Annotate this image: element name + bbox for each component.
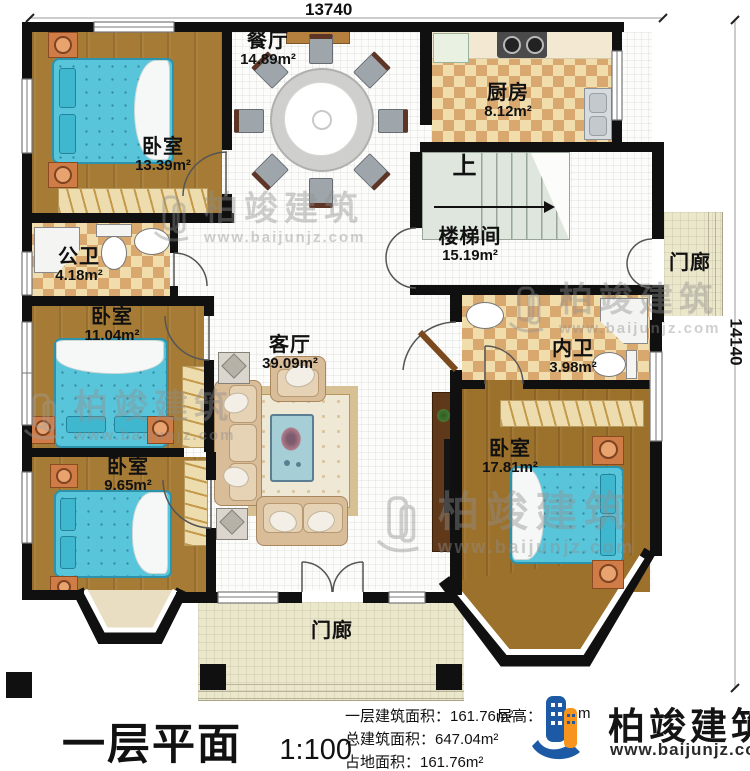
room-label-public-bath: 公卫4.18m² bbox=[29, 246, 129, 285]
room-label-bedroom-top-left: 卧室13.39m² bbox=[113, 136, 213, 175]
brand-logo-icon bbox=[518, 690, 600, 770]
drawing-title: 一层平面图 bbox=[62, 710, 263, 771]
stair-up-label: 上 bbox=[450, 154, 480, 181]
dimension-right: 14140 bbox=[726, 318, 746, 365]
stat-floor-area: 一层建筑面积：161.76m² bbox=[345, 705, 513, 726]
door-leaf-bedroom-right bbox=[420, 332, 456, 370]
dimension-ticks bbox=[26, 14, 739, 692]
room-label-kitchen: 厨房8.12m² bbox=[458, 82, 558, 121]
dimension-lines bbox=[30, 18, 735, 688]
dimension-top: 13740 bbox=[305, 0, 352, 20]
floorplan-structure bbox=[0, 0, 750, 771]
room-label-dining: 餐厅14.89m² bbox=[218, 30, 318, 69]
room-label-bedroom-right: 卧室17.81m² bbox=[460, 438, 560, 477]
brand-url: www.baijunjz.com bbox=[610, 740, 750, 760]
brand-logo: 柏竣建筑 www.baijunjz.com bbox=[518, 690, 750, 770]
drawing-title-block: 一层平面图 1:100 bbox=[62, 710, 352, 771]
room-label-living: 客厅39.09m² bbox=[240, 334, 340, 373]
stat-footprint-area: 占地面积：161.76m² bbox=[345, 751, 483, 771]
room-label-porch-right: 门廊 bbox=[650, 252, 730, 274]
room-label-bedroom-mid-left: 卧室11.04m² bbox=[62, 306, 162, 345]
room-label-porch-bottom: 门廊 bbox=[282, 620, 382, 642]
drawing-scale: 1:100 bbox=[279, 734, 352, 767]
stat-total-area: 总建筑面积：647.04m² bbox=[345, 728, 498, 749]
room-label-inner-bath: 内卫3.98m² bbox=[528, 338, 618, 377]
room-label-stairwell: 楼梯间15.19m² bbox=[415, 226, 525, 265]
room-label-bedroom-bottom-left: 卧室9.65m² bbox=[78, 456, 178, 495]
stat-floor-height-label: 层高： bbox=[497, 705, 542, 726]
stat-floor-height-unit: m bbox=[578, 705, 591, 722]
floorplan-canvas: 13740 14140 餐厅14.89m² 厨房8.12m² 卧室13.39m²… bbox=[0, 0, 750, 771]
